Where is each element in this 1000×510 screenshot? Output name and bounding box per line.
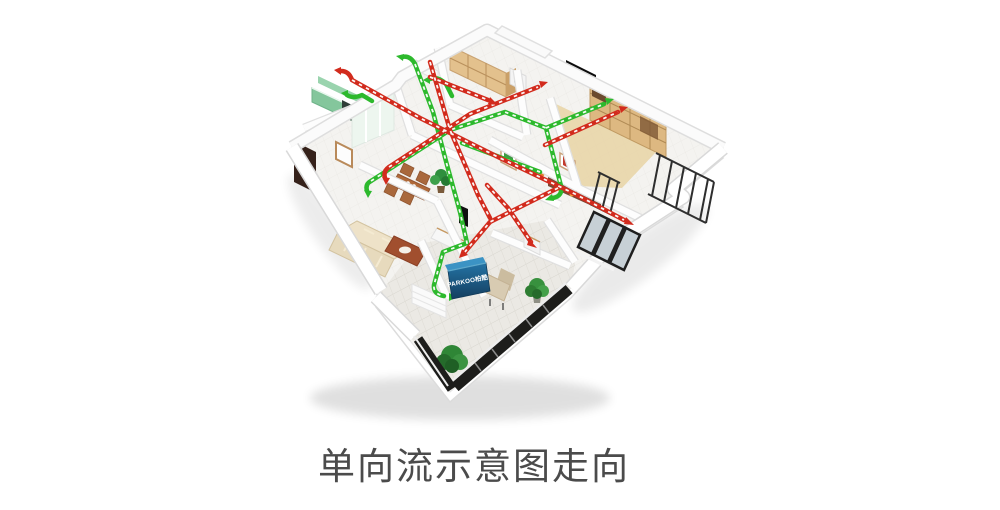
one-way-flow-diagram: PARKOO柏酷 单向流示意图走向 bbox=[0, 0, 1000, 510]
caption: 单向流示意图走向 bbox=[318, 436, 630, 490]
apartment-3d-view: PARKOO柏酷 bbox=[0, 0, 1000, 510]
